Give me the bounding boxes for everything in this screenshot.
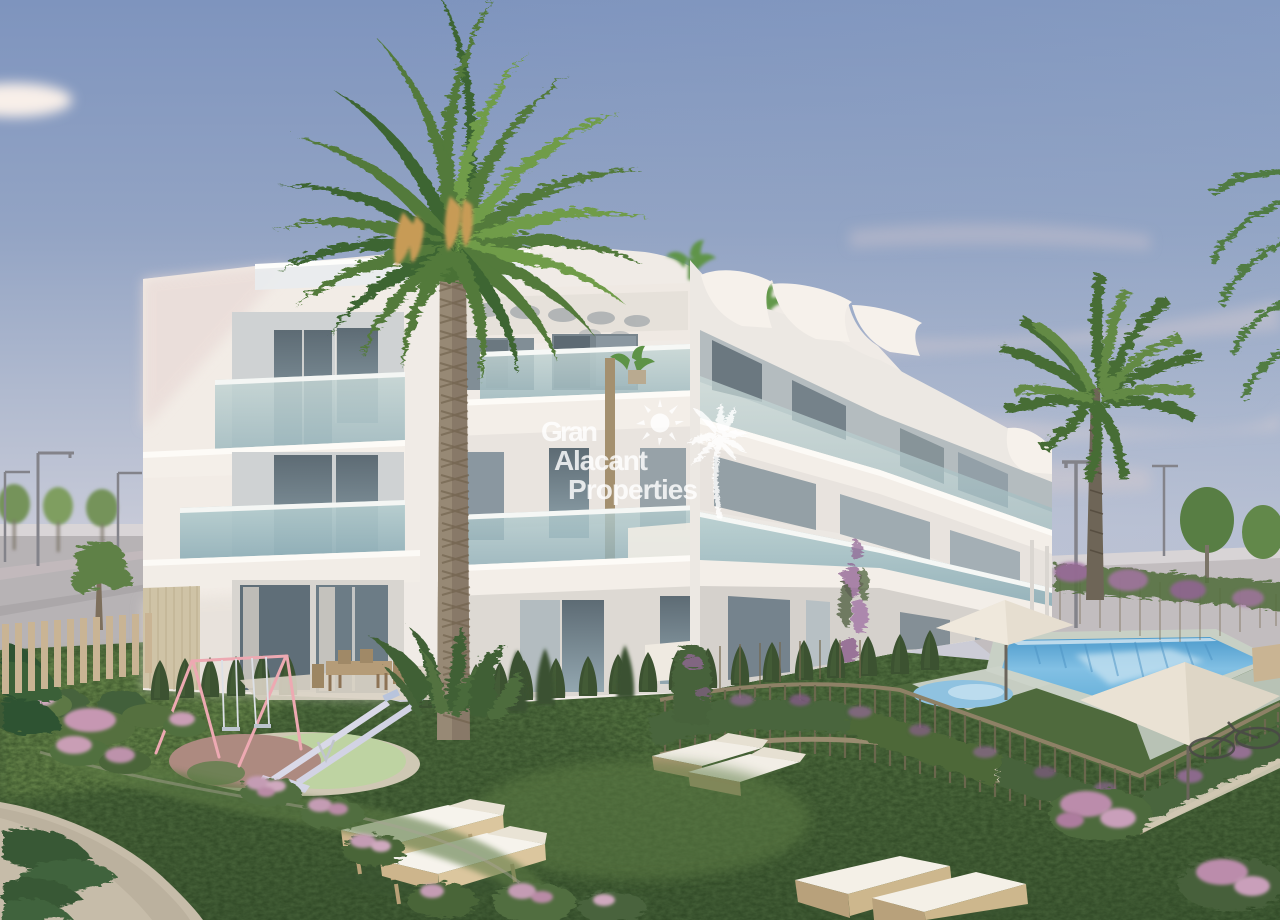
svg-text:Gran: Gran <box>541 416 598 447</box>
svg-text:Alacant: Alacant <box>554 445 648 476</box>
svg-text:Properties: Properties <box>568 474 698 505</box>
